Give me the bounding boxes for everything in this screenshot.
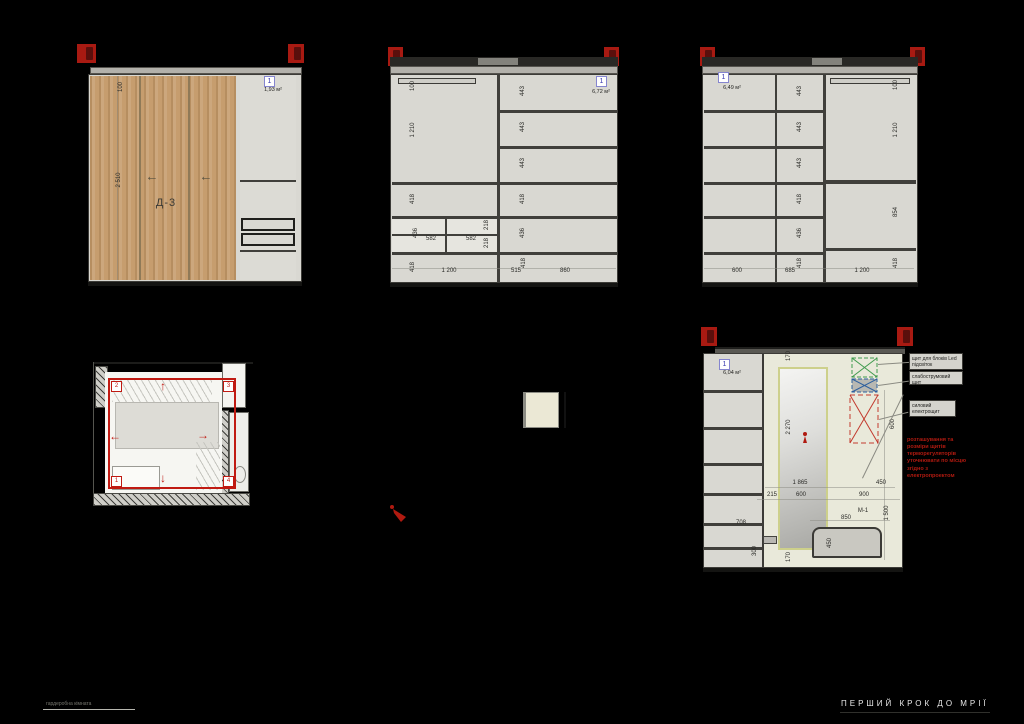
dim-label: 2 270 [786, 419, 792, 434]
wall-hatch [93, 493, 250, 506]
area-badge: 1 [719, 359, 730, 370]
shelf-line [392, 252, 497, 255]
shelf-line [703, 427, 763, 430]
dim-label: 900 [859, 492, 869, 498]
red-note-line: терморегуляторів [907, 451, 966, 458]
shelf-line [500, 110, 618, 113]
dim-label: 100 [118, 82, 124, 92]
area-value: 1,93 м² [264, 87, 282, 93]
view-arrow-icon: ↑ [160, 379, 166, 393]
shelf-column [703, 353, 763, 568]
area-badge: 1 [264, 76, 275, 87]
elevation-marker: 3 [223, 381, 234, 392]
elevation-marker: 1 [111, 476, 122, 487]
plinth-shadow [702, 283, 918, 287]
dim-label: 450 [827, 538, 833, 548]
red-note-line: електропроектом [907, 473, 966, 480]
low-current-panel-box [851, 378, 878, 393]
dim-label: 600 [796, 492, 806, 498]
shelf-line [500, 146, 618, 149]
shelf-line [704, 216, 823, 219]
area-badge: 1 [596, 76, 607, 87]
dim-label: 854 [893, 207, 899, 217]
dim-label: 443 [520, 122, 526, 132]
dim-line [392, 268, 616, 269]
dim-label: 1 865 [792, 480, 807, 486]
brand-underline [840, 712, 990, 713]
front-view-panel: 100 2 510 ← ← Д-3 1 1,93 м² [75, 40, 310, 290]
shelf-line [825, 248, 916, 251]
shelf-line [704, 252, 823, 255]
dim-label: 850 [841, 515, 851, 521]
dim-label: 685 [785, 268, 795, 274]
shelf-line [703, 523, 763, 526]
dim-label: 2 510 [116, 172, 122, 187]
view-arrow-icon: → [197, 428, 209, 442]
area-value: 6,72 м² [592, 89, 610, 95]
area-value: 6,49 м² [723, 85, 741, 91]
drawer-mid-line [392, 234, 497, 236]
divider [823, 74, 826, 283]
door-label: Д-3 [156, 197, 176, 209]
annotation-low-current: слабострумовий щит [909, 371, 963, 385]
cabinet-top-band [390, 66, 618, 74]
ceiling-bar [702, 57, 918, 66]
section-marker-icon [897, 327, 913, 346]
dim-label: 215 [767, 492, 777, 498]
shelf-line [704, 182, 823, 185]
red-note-line: розміри щитів [907, 444, 966, 451]
material-swatch-group [520, 390, 570, 430]
area-badge: 1 [718, 72, 729, 83]
dim-label: 708 [736, 520, 746, 526]
red-note-line: розташування та [907, 437, 966, 444]
area-value: 6,04 м² [723, 370, 741, 376]
dim-label: 418 [520, 194, 526, 204]
right-elevation-panel: 1 6,49 м² 443 443 443 418 436 418 600 68… [698, 45, 923, 290]
dim-label: 436 [797, 228, 803, 238]
shelf-line [704, 146, 823, 149]
hook-icon [799, 431, 811, 447]
bench [812, 527, 882, 558]
dim-label: 582 [426, 236, 436, 242]
dim-label: 418 [797, 194, 803, 204]
dim-label: 860 [560, 268, 570, 274]
shelf-line [703, 463, 763, 466]
annotation-led-panel: щит для блоків Led підсвіток [909, 353, 963, 370]
dim-line [765, 487, 895, 488]
dim-label: 100 [893, 80, 899, 90]
section-marker-icon [77, 44, 96, 63]
dim-label: 418 [410, 194, 416, 204]
dim-line [757, 499, 900, 500]
dim-label: 218 [484, 220, 490, 230]
material-swatch [523, 392, 559, 428]
dim-label: 418 [797, 258, 803, 268]
dim-label: М-1 [858, 508, 868, 514]
dim-label: 218 [484, 238, 490, 248]
red-note: розташування та розміри щитів терморегул… [907, 437, 966, 480]
dim-label: 1 210 [410, 122, 416, 137]
slide-arrow-icon: ← [200, 169, 213, 184]
shelf-line [500, 216, 618, 219]
shelf-line [703, 390, 763, 393]
led-panel-box [851, 357, 878, 378]
elevation-marker: 2 [111, 381, 122, 392]
dim-label: 515 [511, 268, 521, 274]
shelf-line [392, 182, 497, 185]
cabinet-top-band [90, 67, 302, 74]
floor-plan-panel: 2 3 1 4 ↑ ← → ↓ [85, 350, 260, 515]
shelf-line [500, 252, 618, 255]
drawing-sheet: { "colors": { "background": "#000000", "… [0, 0, 1024, 724]
plinth-shadow [88, 282, 302, 286]
dim-label: 443 [520, 86, 526, 96]
dim-label: 1 200 [854, 268, 869, 274]
elevation-frame [108, 378, 236, 489]
annotation-power: силовий електрощит [909, 400, 956, 417]
hall-elevation-panel: 1 6,04 м² 170 2 270 1 865 450 215 600 90… [698, 325, 998, 577]
shelf-line [240, 250, 296, 252]
slide-arrow-icon: ← [146, 169, 159, 184]
view-arrow-icon: ← [109, 429, 121, 443]
red-note-line: згідно з [907, 466, 966, 473]
power-panel-box [849, 394, 879, 444]
dim-label: 418 [893, 258, 899, 268]
dim-label: 600 [732, 268, 742, 274]
ceiling-bar-gap [478, 58, 518, 65]
dim-label: 1 210 [893, 122, 899, 137]
plinth-shadow [390, 283, 618, 287]
dim-label: 436 [413, 228, 419, 238]
plinth-shadow [703, 568, 903, 572]
dim-label: 443 [797, 122, 803, 132]
dim-label: 170 [786, 351, 792, 361]
wall-line [93, 362, 94, 505]
sheet-caption: гардеробна кімната [46, 701, 91, 707]
drawer-front [241, 218, 295, 231]
dim-label: 170 [786, 552, 792, 562]
mirror [778, 367, 828, 550]
dim-label: 582 [466, 236, 476, 242]
caption-underline [43, 709, 135, 710]
shelf-line [500, 182, 618, 185]
dim-label: 450 [876, 480, 886, 486]
ceiling-bar-gap [812, 58, 842, 65]
dim-label: 443 [797, 158, 803, 168]
dim-label: 1 500 [884, 505, 890, 520]
view-arrow-icon: ↓ [160, 471, 166, 485]
section-marker-icon [288, 44, 304, 63]
shelf-line [703, 493, 763, 496]
dim-label: 443 [520, 158, 526, 168]
dim-label: 418 [410, 262, 416, 272]
door-gap [188, 76, 190, 280]
shelf-line [825, 180, 916, 184]
studio-brand: ПЕРШИЙ КРОК ДО МРІЇ [841, 699, 989, 708]
red-note-line: уточнювати по місцю [907, 458, 966, 465]
elevation-marker: 4 [223, 476, 234, 487]
dim-label: 443 [797, 86, 803, 96]
dim-label: 418 [521, 258, 527, 268]
shelf-line [240, 180, 296, 182]
door-gap [139, 76, 141, 280]
dim-label: 1 200 [441, 268, 456, 274]
dim-line [884, 390, 885, 560]
wood-doors [90, 76, 236, 280]
shelf-line [704, 110, 823, 113]
socket-box [763, 536, 777, 544]
section-marker-icon [701, 327, 717, 346]
dim-label: 300 [752, 546, 758, 556]
left-elevation-panel: 1 6,72 м² 100 1 210 418 436 582 582 218 … [385, 45, 625, 290]
swatch-edge-line [564, 392, 566, 428]
dim-label: 100 [410, 81, 416, 91]
drawer-front [241, 233, 295, 246]
hook-icon [388, 503, 410, 525]
cabinet-top-band [702, 66, 918, 74]
dim-label: 436 [520, 228, 526, 238]
